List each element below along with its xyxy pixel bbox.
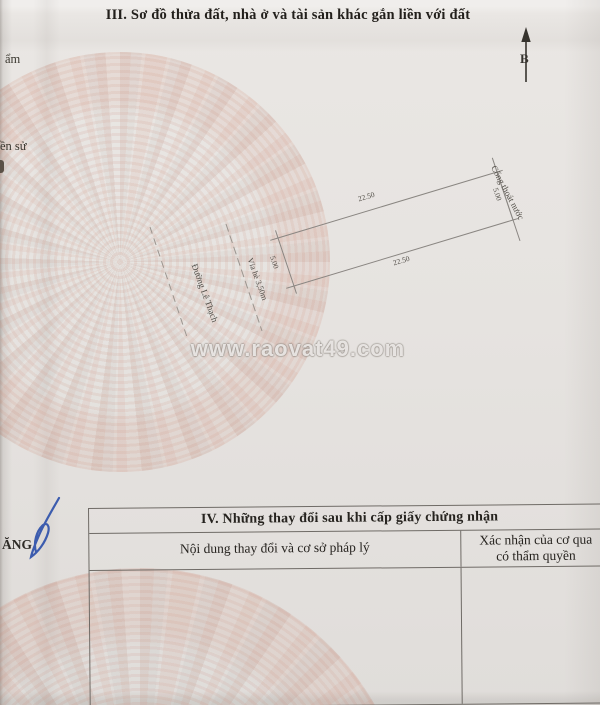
dim-top: 22.50 xyxy=(357,190,376,204)
signature-mark xyxy=(31,498,59,557)
section4-table: IV. Những thay đổi sau khi cấp giấy chứn… xyxy=(88,503,600,705)
cell-content-empty xyxy=(90,568,463,705)
dim-left: 5.00 xyxy=(268,255,281,271)
parcel-outline xyxy=(270,158,520,294)
sidewalk-label: Vỉa hè 3,50m xyxy=(246,257,270,302)
certificate-page: III. Sơ đồ thửa đất, nhà ở và tài sản kh… xyxy=(0,0,600,705)
col-header-authority-line2: có thẩm quyền xyxy=(463,547,600,564)
site-watermark: www.raovat49.com xyxy=(168,336,428,362)
table-empty-row xyxy=(90,566,600,705)
north-label: B xyxy=(520,51,529,66)
street-label: Đường Lê Thạch xyxy=(190,262,221,324)
col-header-authority: Xác nhận của cơ qua có thẩm quyền xyxy=(461,529,600,566)
cell-authority-empty xyxy=(462,566,600,703)
col-header-authority-line1: Xác nhận của cơ qua xyxy=(463,531,600,548)
table-header-row: Nội dung thay đổi và cơ sở pháp lý Xác n… xyxy=(89,529,600,571)
north-arrow-icon: B xyxy=(520,27,531,82)
col-header-content: Nội dung thay đổi và cơ sở pháp lý xyxy=(89,531,461,570)
